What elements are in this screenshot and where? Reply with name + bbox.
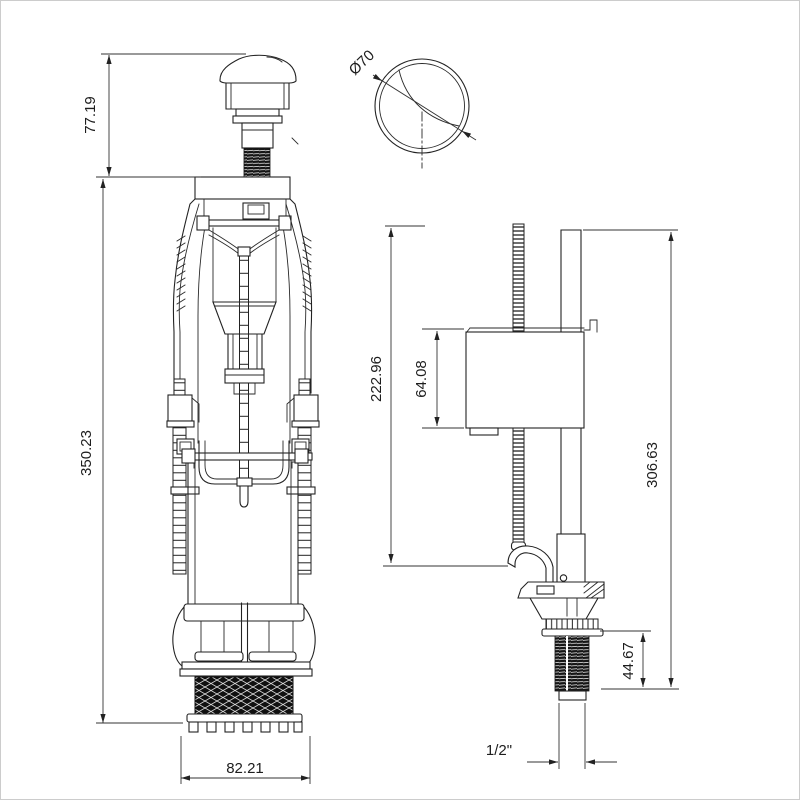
valve-stem bbox=[240, 254, 249, 480]
fill-valve-side-view bbox=[466, 224, 604, 700]
dim-button-diameter: Ø70 bbox=[346, 47, 378, 79]
dim-shank-length: 44.67 bbox=[600, 631, 651, 687]
yoke bbox=[197, 216, 291, 256]
dim-base-width-label: 82.21 bbox=[226, 760, 264, 777]
technical-drawing-canvas: Ø70 bbox=[0, 0, 800, 800]
dim-rod-height-label: 222.96 bbox=[368, 356, 385, 402]
dim-flush-overall-height-label: 350.23 bbox=[78, 430, 95, 476]
button-threaded-rod bbox=[244, 148, 270, 177]
fill-valve-body bbox=[518, 582, 604, 700]
dim-fill-overall-height-label: 306.63 bbox=[644, 442, 661, 488]
base-assembly bbox=[173, 603, 315, 732]
dim-base-width: 82.21 bbox=[181, 736, 310, 784]
dim-button-height-label: 77.19 bbox=[82, 96, 99, 134]
valve-top-plate bbox=[195, 177, 290, 199]
toilet-valve-technical-drawing: Ø70 bbox=[1, 1, 800, 801]
dim-float-height: 64.08 bbox=[413, 329, 464, 428]
dim-flush-overall-height: 350.23 bbox=[78, 179, 183, 723]
base-seal-thread bbox=[195, 677, 293, 714]
push-button-top-view: Ø70 bbox=[346, 47, 476, 168]
float-box bbox=[466, 320, 597, 435]
inlet-shank-thread bbox=[555, 636, 589, 691]
dim-float-height-label: 64.08 bbox=[413, 360, 430, 398]
flush-valve-side-view bbox=[167, 55, 319, 732]
push-button bbox=[220, 55, 298, 177]
dim-thread-size-label: 1/2" bbox=[486, 742, 512, 759]
dim-shank-length-label: 44.67 bbox=[620, 642, 637, 680]
dim-thread-size: 1/2" bbox=[486, 703, 617, 769]
